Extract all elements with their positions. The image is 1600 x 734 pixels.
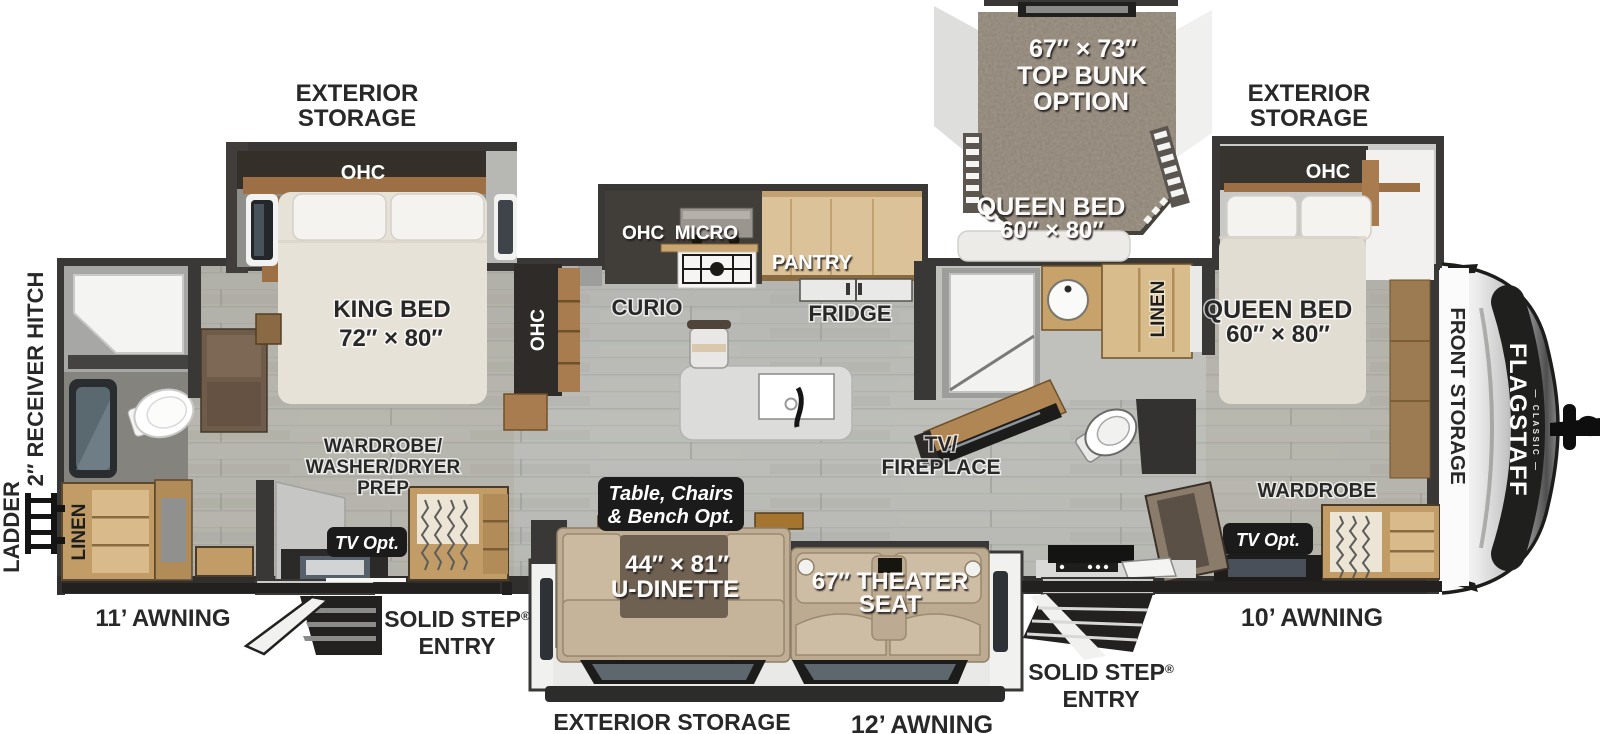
svg-text:KING BED: KING BED [333, 296, 450, 323]
svg-text:LADDER: LADDER [0, 481, 24, 573]
svg-text:TV Opt.: TV Opt. [1236, 530, 1300, 550]
svg-text:EXTERIOR: EXTERIOR [296, 80, 419, 107]
svg-text:60″ × 80″: 60″ × 80″ [1226, 321, 1330, 348]
svg-text:STORAGE: STORAGE [298, 105, 416, 132]
svg-text:EXTERIOR STORAGE: EXTERIOR STORAGE [553, 709, 790, 734]
svg-text:11’ AWNING: 11’ AWNING [95, 605, 230, 632]
svg-text:FLAGSTAFF: FLAGSTAFF [1504, 343, 1531, 497]
svg-text:TV Opt.: TV Opt. [335, 533, 399, 553]
svg-text:SOLID STEP®: SOLID STEP® [1028, 659, 1174, 685]
svg-text:CURIO: CURIO [612, 295, 683, 320]
svg-text:STORAGE: STORAGE [1250, 105, 1368, 132]
svg-text:10’ AWNING: 10’ AWNING [1241, 604, 1383, 632]
svg-text:TV/: TV/ [925, 433, 958, 456]
svg-text:FRONT STORAGE: FRONT STORAGE [1446, 307, 1469, 484]
svg-text:67″ × 73″: 67″ × 73″ [1029, 35, 1137, 63]
svg-text:FIREPLACE: FIREPLACE [881, 456, 1000, 479]
svg-text:OHC: OHC [1306, 161, 1350, 183]
svg-text:WARDROBE/: WARDROBE/ [324, 436, 443, 457]
svg-text:WARDROBE: WARDROBE [1258, 480, 1377, 502]
svg-text:ENTRY: ENTRY [1062, 686, 1139, 712]
svg-text:SOLID STEP®: SOLID STEP® [384, 606, 530, 632]
svg-text:TOP BUNK: TOP BUNK [1017, 62, 1147, 90]
svg-text:PREP: PREP [357, 478, 409, 499]
svg-text:LINEN: LINEN [69, 504, 90, 561]
svg-text:OHC: OHC [341, 162, 385, 184]
svg-text:LINEN: LINEN [1148, 281, 1169, 338]
svg-text:& Bench Opt.: & Bench Opt. [608, 506, 735, 528]
svg-text:OHC MICRO: OHC MICRO [622, 223, 738, 244]
svg-text:QUEEN BED: QUEEN BED [1204, 296, 1353, 324]
svg-text:FRIDGE: FRIDGE [808, 301, 891, 326]
svg-text:OPTION: OPTION [1033, 88, 1129, 116]
svg-text:ENTRY: ENTRY [418, 633, 495, 659]
svg-text:EXTERIOR: EXTERIOR [1248, 80, 1371, 107]
svg-text:60″ × 80″: 60″ × 80″ [1000, 217, 1104, 244]
svg-text:— CLASSIC —: — CLASSIC — [1531, 389, 1540, 472]
svg-text:WASHER/DRYER: WASHER/DRYER [306, 457, 461, 478]
svg-text:2″ RECEIVER HITCH: 2″ RECEIVER HITCH [23, 272, 48, 487]
svg-text:U-DINETTE: U-DINETTE [611, 576, 739, 603]
svg-text:Table, Chairs: Table, Chairs [609, 483, 734, 505]
svg-text:OHC: OHC [528, 309, 549, 352]
svg-text:12’ AWNING: 12’ AWNING [851, 711, 993, 734]
svg-text:SEAT: SEAT [859, 591, 922, 618]
svg-text:72″ × 80″: 72″ × 80″ [339, 325, 443, 352]
svg-text:PANTRY: PANTRY [772, 252, 853, 274]
svg-text:44″ × 81″: 44″ × 81″ [625, 551, 729, 578]
